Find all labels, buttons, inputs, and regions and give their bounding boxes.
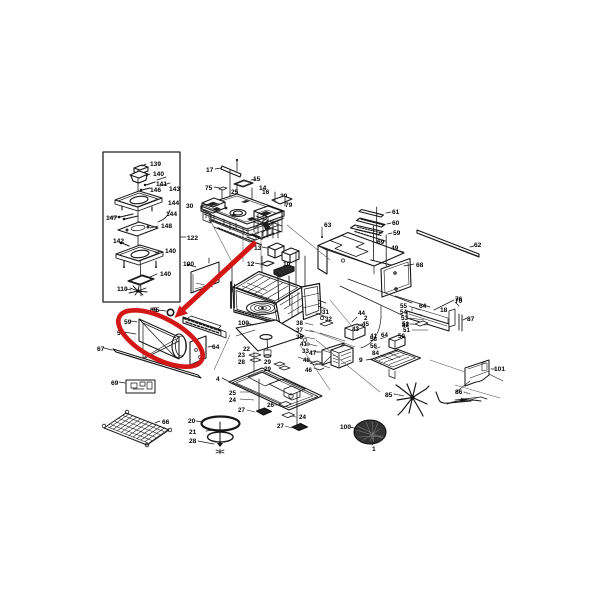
svg-text:75: 75 <box>205 185 213 192</box>
svg-text:12: 12 <box>247 261 255 268</box>
svg-text:68: 68 <box>416 262 424 269</box>
svg-text:64: 64 <box>419 303 427 310</box>
svg-text:28: 28 <box>189 438 197 445</box>
svg-text:20: 20 <box>188 418 196 425</box>
svg-text:144: 144 <box>166 211 177 218</box>
svg-text:37: 37 <box>296 327 303 334</box>
svg-text:110: 110 <box>117 286 128 293</box>
svg-text:48: 48 <box>303 357 310 364</box>
svg-text:62: 62 <box>474 242 482 249</box>
svg-text:140: 140 <box>165 248 176 255</box>
svg-text:38: 38 <box>296 320 303 327</box>
svg-text:32: 32 <box>325 316 332 323</box>
svg-text:148: 148 <box>161 223 172 230</box>
svg-text:140: 140 <box>153 171 164 178</box>
svg-text:13: 13 <box>254 245 262 252</box>
svg-text:142: 142 <box>113 238 124 245</box>
svg-text:21: 21 <box>189 429 197 436</box>
svg-text:64: 64 <box>212 344 220 351</box>
svg-text:86: 86 <box>455 389 463 396</box>
svg-text:23: 23 <box>238 352 245 359</box>
svg-text:4: 4 <box>216 376 220 383</box>
svg-text:50: 50 <box>398 333 405 340</box>
svg-text:9: 9 <box>359 357 363 364</box>
svg-text:24: 24 <box>229 397 236 404</box>
svg-text:24: 24 <box>299 414 306 421</box>
svg-text:60: 60 <box>392 220 400 227</box>
svg-text:46: 46 <box>305 367 312 374</box>
svg-text:47: 47 <box>309 350 317 357</box>
svg-text:27: 27 <box>277 423 284 430</box>
svg-text:30: 30 <box>186 203 194 210</box>
svg-text:59: 59 <box>393 230 401 237</box>
svg-text:63: 63 <box>324 222 332 229</box>
svg-text:100: 100 <box>238 320 249 327</box>
svg-text:15: 15 <box>253 176 261 183</box>
svg-text:28: 28 <box>238 359 245 366</box>
svg-text:17: 17 <box>206 167 214 174</box>
svg-text:31: 31 <box>322 309 329 316</box>
svg-text:16: 16 <box>262 189 270 196</box>
svg-text:76: 76 <box>455 296 463 303</box>
svg-text:84: 84 <box>372 350 379 357</box>
svg-text:61: 61 <box>392 209 400 216</box>
svg-text:85: 85 <box>385 392 393 399</box>
svg-text:101: 101 <box>494 366 505 373</box>
svg-text:69: 69 <box>377 239 385 246</box>
svg-text:18: 18 <box>440 307 448 314</box>
svg-text:27: 27 <box>238 407 245 414</box>
svg-text:10: 10 <box>283 261 291 268</box>
svg-text:29: 29 <box>264 366 271 373</box>
svg-text:22: 22 <box>243 346 250 353</box>
svg-text:35: 35 <box>296 334 303 341</box>
svg-text:143: 143 <box>169 186 180 193</box>
svg-text:66: 66 <box>162 419 170 426</box>
svg-text:45: 45 <box>362 321 369 328</box>
svg-text:100: 100 <box>340 424 351 431</box>
svg-text:100: 100 <box>183 261 194 268</box>
svg-text:64: 64 <box>381 332 388 339</box>
svg-text:140: 140 <box>160 271 171 278</box>
svg-text:25: 25 <box>229 390 236 397</box>
svg-text:146: 146 <box>150 187 161 194</box>
svg-text:56: 56 <box>370 343 377 350</box>
svg-text:139: 139 <box>150 161 161 168</box>
svg-text:1: 1 <box>372 446 376 453</box>
svg-text:83: 83 <box>402 322 409 329</box>
svg-text:67: 67 <box>97 346 105 353</box>
svg-text:26: 26 <box>267 402 274 409</box>
svg-text:79: 79 <box>285 202 293 209</box>
svg-text:69: 69 <box>111 380 119 387</box>
svg-text:29: 29 <box>264 359 271 366</box>
svg-text:144: 144 <box>168 200 179 207</box>
svg-text:59: 59 <box>124 319 132 326</box>
svg-text:87: 87 <box>467 316 475 323</box>
svg-text:122: 122 <box>187 235 198 242</box>
svg-text:147: 147 <box>106 215 117 222</box>
